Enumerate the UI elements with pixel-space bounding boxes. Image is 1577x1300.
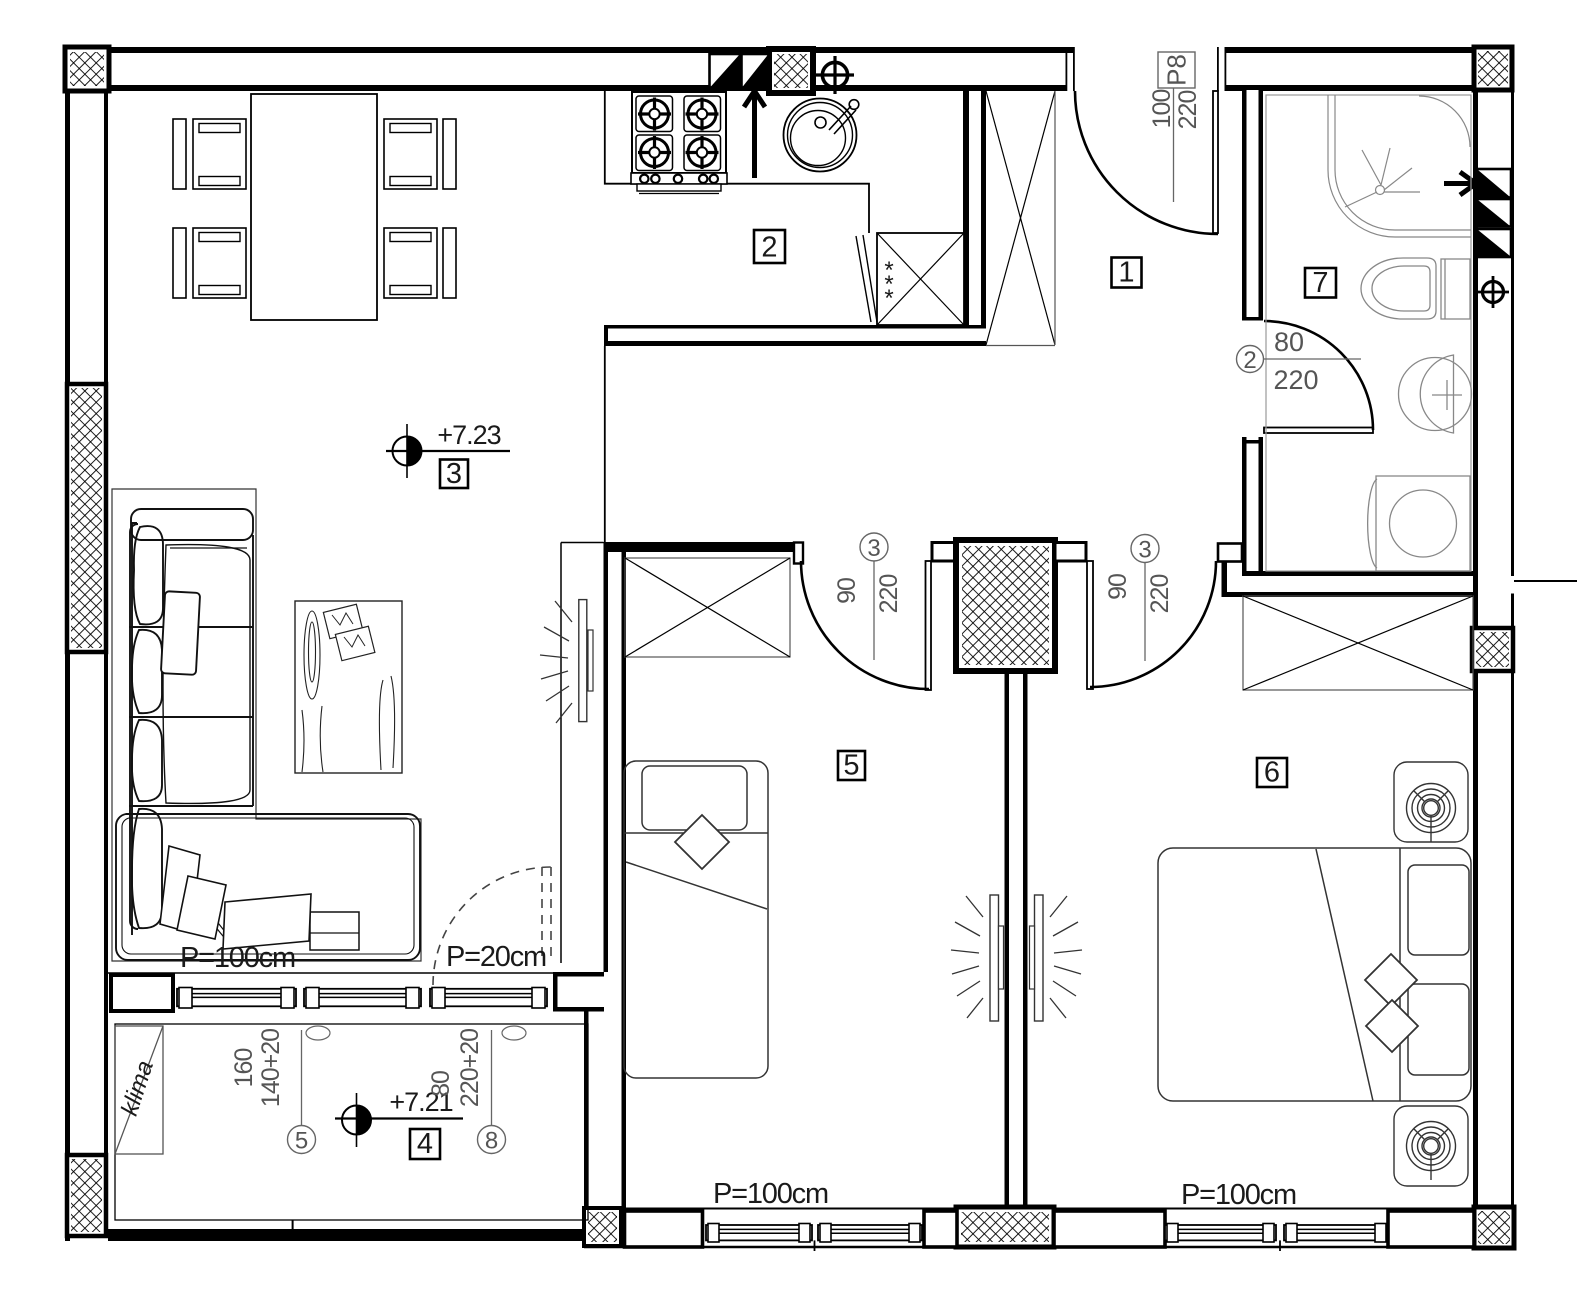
svg-text:5: 5 — [843, 750, 859, 782]
svg-text:4: 4 — [417, 1128, 433, 1160]
svg-text:P=100cm: P=100cm — [180, 942, 295, 974]
svg-text:220: 220 — [875, 575, 903, 614]
svg-text:1: 1 — [1118, 257, 1134, 289]
svg-text:P8: P8 — [1162, 54, 1192, 86]
svg-text:P=100cm: P=100cm — [713, 1178, 828, 1210]
svg-text:140+20: 140+20 — [257, 1029, 285, 1107]
svg-text:3: 3 — [1138, 537, 1151, 564]
svg-text:220: 220 — [1174, 91, 1202, 130]
svg-text:P=100cm: P=100cm — [1181, 1179, 1296, 1211]
svg-text:220: 220 — [1146, 575, 1174, 614]
svg-text:220: 220 — [1273, 365, 1318, 395]
svg-text:3: 3 — [446, 458, 462, 490]
svg-text:7: 7 — [1312, 267, 1328, 299]
svg-text:90: 90 — [1104, 574, 1132, 600]
svg-text:6: 6 — [1264, 757, 1280, 789]
svg-text:*: * — [884, 285, 893, 312]
svg-text:80: 80 — [1274, 327, 1304, 357]
svg-text:160: 160 — [230, 1049, 258, 1088]
svg-text:220+20: 220+20 — [456, 1029, 484, 1107]
svg-text:P=20cm: P=20cm — [446, 941, 546, 973]
svg-text:90: 90 — [833, 578, 861, 604]
svg-text:8: 8 — [485, 1128, 498, 1155]
svg-text:80: 80 — [427, 1071, 455, 1097]
svg-text:+7.23: +7.23 — [437, 420, 500, 450]
svg-text:5: 5 — [295, 1128, 308, 1155]
svg-text:3: 3 — [867, 535, 880, 562]
svg-text:2: 2 — [1243, 347, 1256, 374]
svg-text:2: 2 — [761, 232, 777, 264]
svg-text:100: 100 — [1148, 90, 1176, 129]
